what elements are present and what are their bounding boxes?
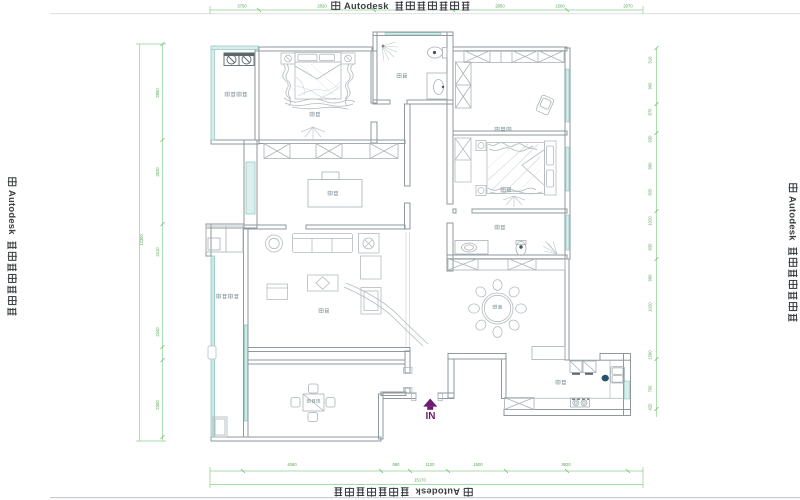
svg-text:12300: 12300 (139, 234, 144, 246)
svg-text:830: 830 (648, 243, 653, 251)
svg-text:Autodesk: Autodesk (7, 190, 18, 235)
svg-text:690: 690 (393, 462, 401, 467)
svg-text:990: 990 (648, 274, 653, 282)
svg-text:870: 870 (648, 108, 653, 116)
svg-text:15170: 15170 (414, 478, 426, 483)
svg-text:820: 820 (648, 188, 653, 196)
svg-text:4060: 4060 (287, 462, 297, 467)
svg-text:1020: 1020 (648, 302, 653, 312)
svg-text:1590: 1590 (648, 350, 653, 360)
svg-text:Autodesk: Autodesk (415, 487, 460, 498)
svg-text:3750: 3750 (237, 4, 247, 9)
svg-text:2410: 2410 (155, 247, 160, 257)
svg-text:960: 960 (648, 82, 653, 90)
svg-text:510: 510 (648, 56, 653, 64)
svg-text:3920: 3920 (561, 462, 571, 467)
svg-text:2850: 2850 (495, 4, 505, 9)
svg-text:IN: IN (426, 411, 436, 422)
svg-text:Autodesk: Autodesk (344, 0, 389, 11)
svg-text:890: 890 (648, 162, 653, 170)
svg-text:700: 700 (648, 385, 653, 393)
svg-text:2850: 2850 (155, 88, 160, 98)
svg-text:2440: 2440 (155, 327, 160, 337)
svg-text:930: 930 (648, 135, 653, 143)
svg-text:2300: 2300 (155, 400, 160, 410)
svg-text:420: 420 (648, 403, 653, 411)
svg-text:2820: 2820 (317, 4, 327, 9)
svg-text:1500: 1500 (555, 4, 565, 9)
svg-text:Autodesk: Autodesk (788, 196, 799, 241)
svg-text:1020: 1020 (648, 216, 653, 226)
svg-text:1120: 1120 (425, 462, 435, 467)
svg-text:1500: 1500 (473, 462, 483, 467)
svg-text:2520: 2520 (155, 167, 160, 177)
svg-text:2070: 2070 (623, 4, 633, 9)
